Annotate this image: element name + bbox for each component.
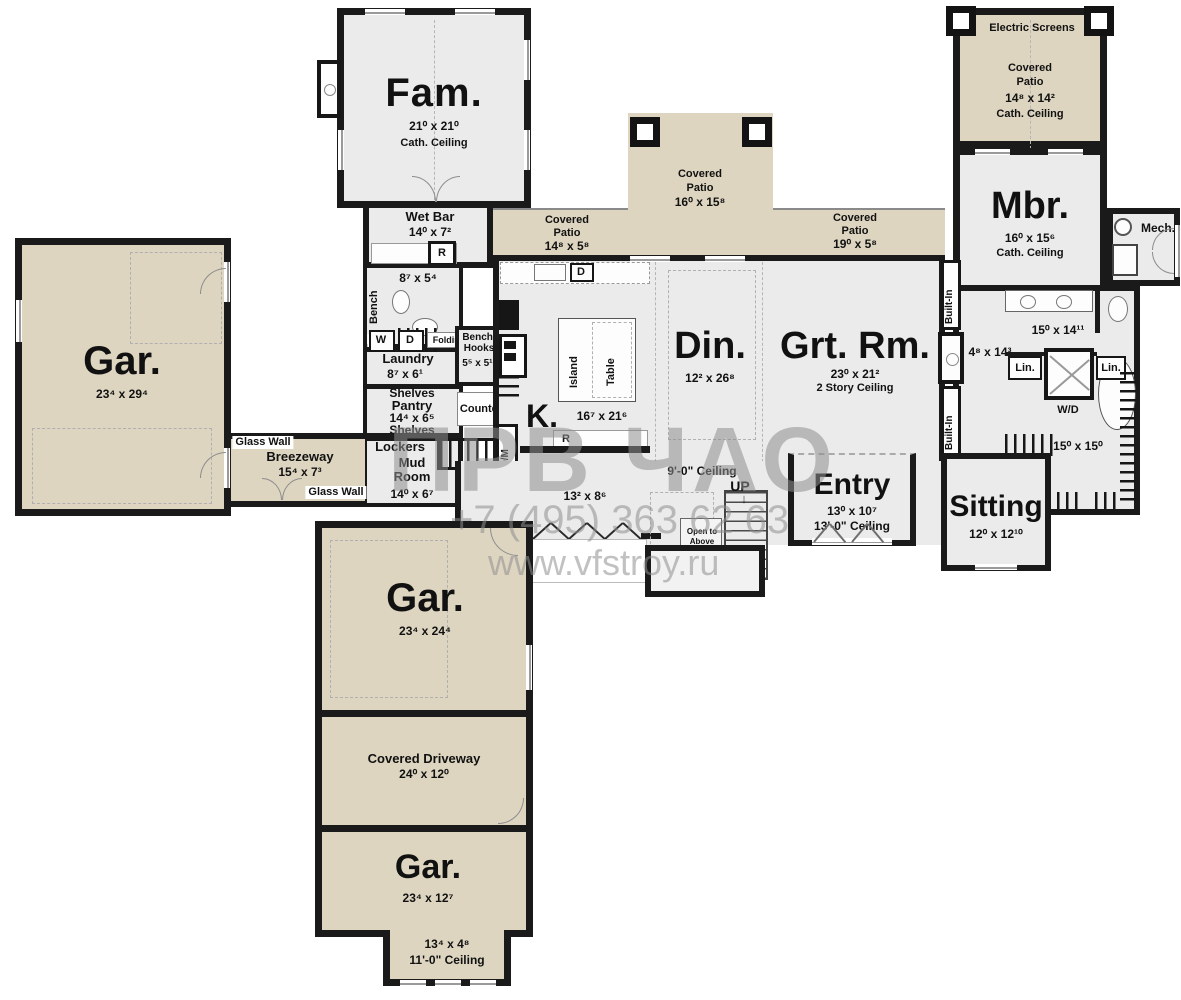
built-in-label: Built-In xyxy=(944,392,955,450)
patio-kitchen-label: Covered xyxy=(545,214,589,227)
garage-left-name: Gar. xyxy=(83,338,161,384)
patio-great-label: Covered xyxy=(833,212,877,225)
laundry-name: Laundry xyxy=(382,352,433,367)
family-dims: 21⁰ x 21⁰ xyxy=(409,120,459,134)
kitchen-sink-icon xyxy=(534,264,566,281)
wet-bar-name: Wet Bar xyxy=(406,210,455,225)
patio-column-icon xyxy=(742,117,772,147)
refrigerator-icon: R xyxy=(428,241,456,266)
built-in-label: Built-In xyxy=(944,266,955,324)
island-label: Island xyxy=(568,332,580,388)
toilet-icon xyxy=(1108,296,1128,322)
watermark-site: www.vfstroy.ru xyxy=(488,542,719,584)
glass-wall-label: Glass Wall xyxy=(232,436,293,449)
window xyxy=(455,9,495,15)
sitting-name: Sitting xyxy=(949,490,1042,525)
patio-master-dims: 14⁸ x 14² xyxy=(1005,92,1055,106)
bench-hooks-dims: 5⁵ x 5¹¹ xyxy=(462,358,496,370)
garage-bottom-dims: 23⁴ x 12⁷ xyxy=(403,892,454,906)
patio-center-label2: Patio xyxy=(687,182,714,195)
refrigerator-icon xyxy=(499,300,519,330)
sink-icon xyxy=(392,290,410,314)
patio-center-dims: 16⁰ x 15⁸ xyxy=(675,196,726,210)
master-dims: 16⁰ x 15⁶ xyxy=(1005,232,1055,246)
window xyxy=(1048,149,1083,155)
great-room-ceiling: 2 Story Ceiling xyxy=(816,382,893,395)
sink-icon xyxy=(1056,295,1072,309)
closet-rod-hatch xyxy=(1095,492,1121,509)
window xyxy=(435,980,461,986)
wd-x xyxy=(1049,355,1090,391)
dryer-icon: D xyxy=(398,330,424,352)
window xyxy=(338,130,344,170)
garage-bottom-name: Gar. xyxy=(395,848,461,887)
patio-column-icon xyxy=(946,6,976,36)
window xyxy=(975,564,1017,570)
garage-bump-dims: 13⁴ x 4⁸ xyxy=(425,938,470,952)
electric-screens-label: Electric Screens xyxy=(989,22,1075,35)
fireplace-icon xyxy=(938,332,964,384)
window xyxy=(365,9,405,15)
garage-bump-ceiling: 11'-0" Ceiling xyxy=(409,954,484,968)
window xyxy=(470,980,496,986)
patio-column-icon xyxy=(630,117,660,147)
patio-great-label2: Patio xyxy=(842,225,869,238)
door-opening xyxy=(1175,225,1181,277)
wall-segment xyxy=(1095,285,1100,333)
bench-hooks-label: Bench/ xyxy=(462,332,495,344)
wd-x xyxy=(1049,359,1090,395)
window xyxy=(630,256,670,262)
laundry-dims: 8⁷ x 6¹ xyxy=(387,368,423,382)
wd-closet xyxy=(1044,348,1094,400)
dining-name: Din. xyxy=(674,325,746,369)
wet-bar-dims: 14⁰ x 7² xyxy=(409,226,451,240)
master-name: Mbr. xyxy=(991,185,1069,229)
dining-dims: 12² x 26⁸ xyxy=(685,372,735,386)
mech-equipment xyxy=(1112,244,1138,276)
patio-kitchen-dims: 14⁸ x 5⁸ xyxy=(545,240,590,254)
great-room-name: Grt. Rm. xyxy=(780,325,930,369)
garage-middle-dims: 23⁴ x 24⁴ xyxy=(399,625,451,639)
patio-kitchen-label2: Patio xyxy=(554,227,581,240)
patio-great-dims: 19⁰ x 5⁸ xyxy=(833,238,877,252)
breezeway-name: Breezeway xyxy=(266,450,333,465)
closet-rod-hatch xyxy=(1120,372,1136,507)
window xyxy=(526,645,532,690)
bench-hooks-label2: Hooks xyxy=(464,343,495,355)
fireplace-icon xyxy=(317,60,341,118)
linen-closet: Lin. xyxy=(1008,356,1042,380)
closet-rod-hatch xyxy=(1048,492,1080,509)
window xyxy=(705,256,745,262)
patio-master-label2: Patio xyxy=(1017,76,1044,89)
bench-label: Bench xyxy=(368,272,380,324)
wd-label: W/D xyxy=(1057,404,1078,417)
window xyxy=(524,40,530,80)
garage-stall-dash xyxy=(32,428,212,504)
great-room-dims: 23⁰ x 21² xyxy=(831,368,880,382)
window xyxy=(16,300,22,342)
sink-icon xyxy=(1020,295,1036,309)
garage-middle-name: Gar. xyxy=(386,575,464,621)
master-bath-dims: 15⁰ x 14¹¹ xyxy=(1032,324,1085,338)
family-name: Fam. xyxy=(385,70,482,116)
table-label: Table xyxy=(605,334,617,386)
patio-center-label: Covered xyxy=(678,168,722,181)
pool-bath-dims: 8⁷ x 5⁴ xyxy=(399,272,437,286)
watermark-phone: +7 (495) 363 62 63 xyxy=(450,498,789,543)
window xyxy=(975,149,1010,155)
vanity-double-sink xyxy=(1005,290,1093,312)
cabinet-hatch xyxy=(499,376,519,398)
garage-stall-dash xyxy=(130,252,222,344)
washer-icon: W xyxy=(369,330,395,352)
sitting-dims: 12⁰ x 12¹⁰ xyxy=(969,528,1023,542)
master-ceiling: Cath. Ceiling xyxy=(996,247,1063,260)
patio-master-label: Covered xyxy=(1008,62,1052,75)
floor-plan: Covered Patio 16⁰ x 15⁸ Covered Patio 14… xyxy=(0,0,1181,1000)
driveway-name: Covered Driveway xyxy=(368,752,481,767)
dishwasher-icon: D xyxy=(570,263,594,282)
garage-left-dims: 23⁴ x 29⁴ xyxy=(96,388,148,402)
patio-column-icon xyxy=(1084,6,1114,36)
patio-master-ceiling: Cath. Ceiling xyxy=(996,108,1063,121)
window xyxy=(400,980,426,986)
window xyxy=(524,130,530,170)
driveway-dims: 24⁰ x 12⁰ xyxy=(399,768,449,782)
glass-wall-label: Glass Wall xyxy=(305,486,366,499)
oven-icon xyxy=(499,334,527,378)
family-ceiling: Cath. Ceiling xyxy=(400,137,467,150)
master-closet-dims: 15⁰ x 15⁰ xyxy=(1053,440,1103,454)
water-heater-icon xyxy=(1114,218,1132,236)
